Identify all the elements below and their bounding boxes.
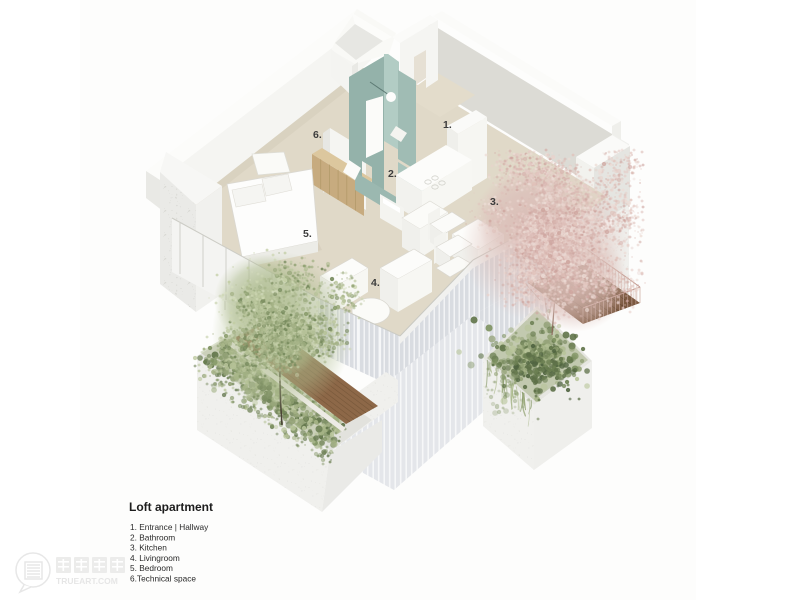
- svg-text:1.: 1.: [443, 119, 452, 131]
- svg-text:4. Livingroom: 4. Livingroom: [130, 553, 180, 563]
- svg-text:4.: 4.: [371, 277, 380, 289]
- svg-text:5.: 5.: [303, 228, 312, 240]
- svg-text:3.: 3.: [490, 196, 499, 208]
- svg-text:6.Technical space: 6.Technical space: [130, 574, 196, 584]
- svg-text:1. Entrance | Hallway: 1. Entrance | Hallway: [130, 522, 209, 532]
- svg-text:2.: 2.: [388, 168, 397, 180]
- svg-text:TRUEART.COM: TRUEART.COM: [56, 576, 118, 586]
- svg-text:Loft apartment: Loft apartment: [129, 500, 213, 514]
- svg-text:3. Kitchen: 3. Kitchen: [130, 543, 167, 553]
- svg-text:2. Bathroom: 2. Bathroom: [130, 532, 175, 542]
- svg-text:6.: 6.: [313, 129, 322, 141]
- svg-text:5. Bedroom: 5. Bedroom: [130, 563, 173, 573]
